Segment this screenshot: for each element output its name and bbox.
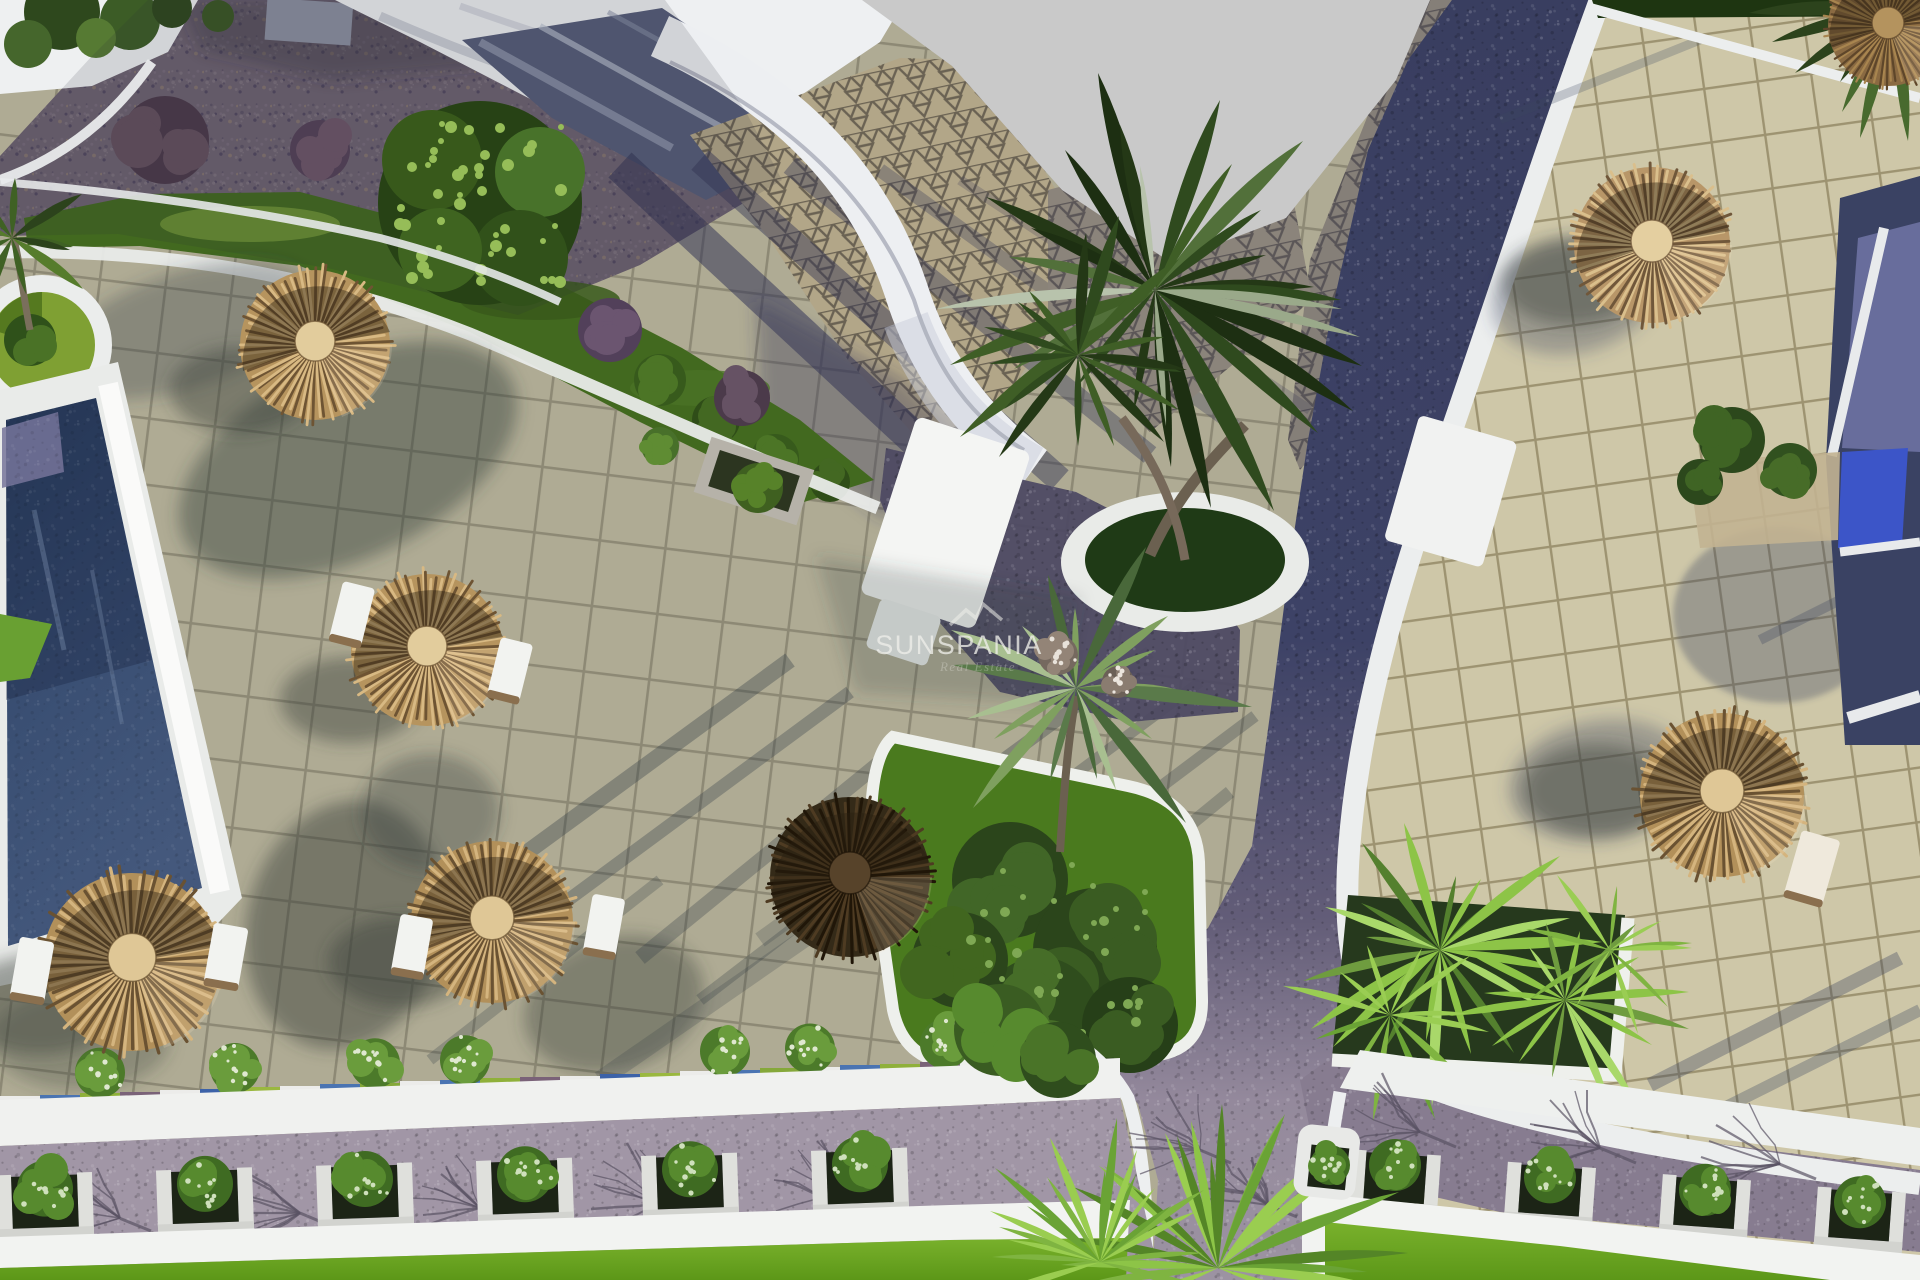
svg-text:Real Estate: Real Estate xyxy=(939,659,1016,674)
svg-text:SUNSPANIA: SUNSPANIA xyxy=(875,630,1043,660)
